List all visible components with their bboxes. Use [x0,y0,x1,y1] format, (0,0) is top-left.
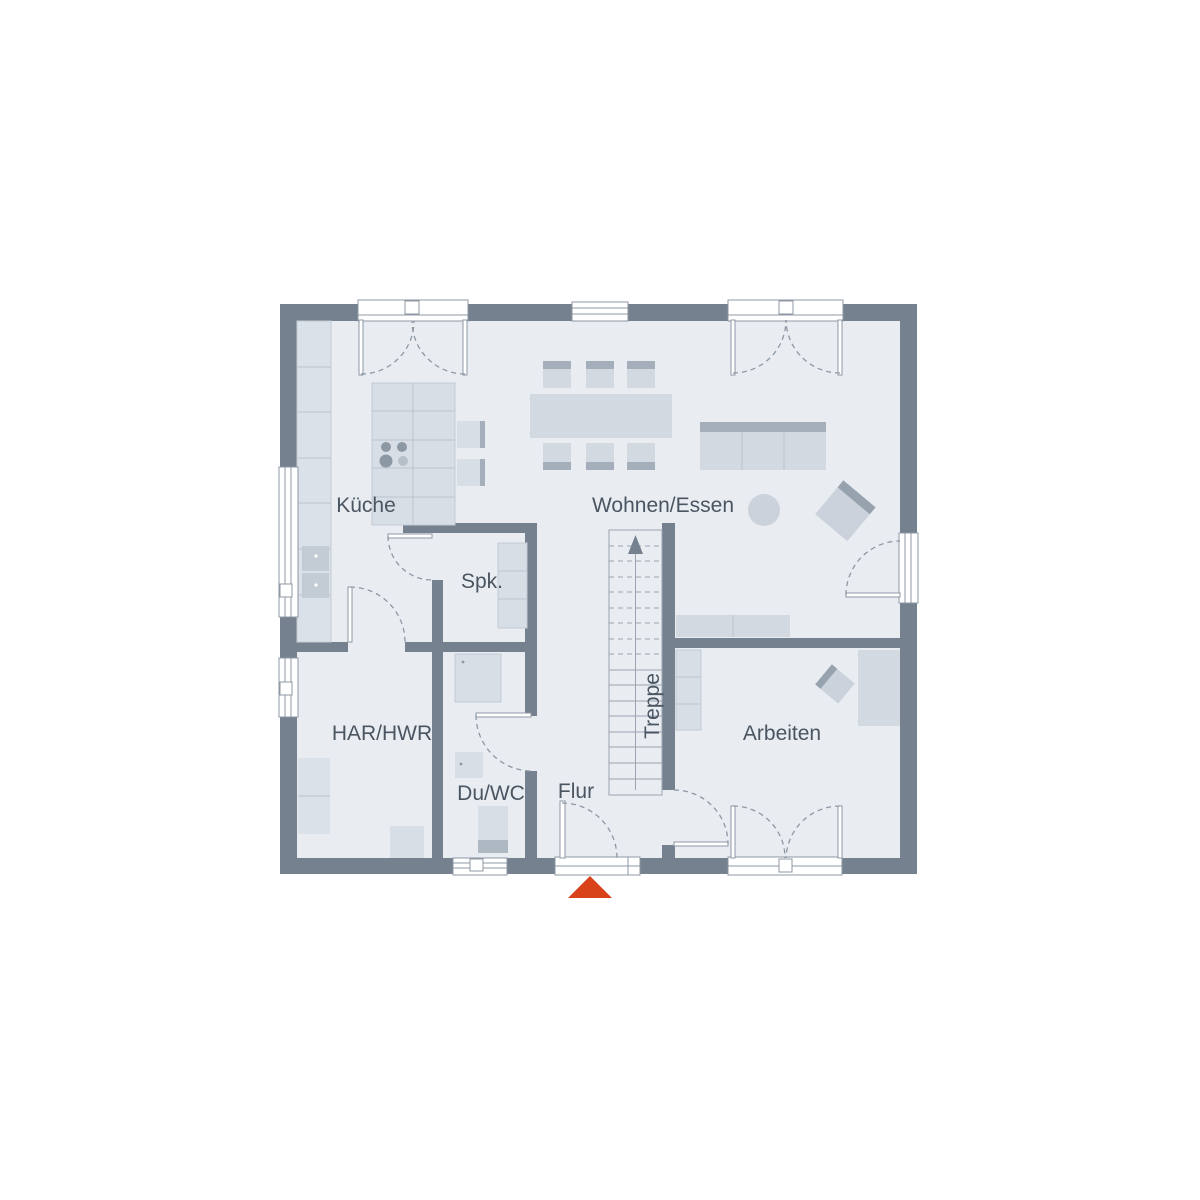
room-label-treppe: Treppe [641,673,664,739]
washbasin [455,752,483,778]
burner-4 [398,456,408,466]
door-leaf [731,320,735,375]
dining-chair [627,369,655,388]
room-label-kueche: Küche [336,494,396,517]
door-leaf [560,801,565,858]
floor-plan-page: Küche Wohnen/Essen Spk. HAR/HWR Du/WC Fl… [0,0,1200,1200]
door-leaf [846,593,900,597]
side-table [748,494,780,526]
shower-drain [462,661,465,664]
room-label-wohnen-essen: Wohnen/Essen [592,494,734,517]
window-top-center [572,302,628,321]
burner-3 [380,455,393,468]
wall-har-north-left [280,642,348,652]
window-handle-icon [280,584,292,597]
burner-2 [397,442,407,452]
dining-set [530,361,672,470]
door-handle-icon [405,301,419,314]
kitchen-sink-upper [302,546,329,571]
toilet [478,806,508,840]
bookshelf [676,650,701,730]
chair-back [543,462,571,470]
dining-chair [543,443,571,462]
door-leaf [476,713,531,717]
wall-flur-west-lower [525,771,537,858]
toilet-tank [478,840,508,853]
window-handle-icon [280,682,292,695]
dining-chair [586,443,614,462]
door-frame [899,533,918,603]
wall-stair-east [662,523,675,790]
staircase [609,530,662,795]
dining-chair [543,369,571,388]
door-leaf [348,587,352,642]
kitchen-counter [297,321,331,642]
door-leaf [731,806,735,858]
dining-chair [586,369,614,388]
sofa-back [700,422,826,432]
door-leaf [674,842,728,846]
door-handle-icon [779,859,792,872]
window-frame [572,302,628,321]
sink-dot-2 [314,583,317,586]
door-handle-icon [779,301,793,314]
window-handle-icon [470,859,483,871]
stool-1-back [480,421,485,448]
basin-dot [460,763,463,766]
wall-stair-east-stub [662,845,675,858]
chair-back [627,361,655,369]
chair-back [543,361,571,369]
room-label-har-hwr: HAR/HWR [332,722,432,745]
floor-plan: Küche Wohnen/Essen Spk. HAR/HWR Du/WC Fl… [0,0,1200,1200]
har-appliance-2 [390,826,424,858]
desk [858,650,900,726]
door-leaf [838,806,842,858]
dining-table [530,394,672,438]
sink-dot-1 [314,554,317,557]
room-label-arbeiten: Arbeiten [743,722,821,745]
door-leaf [463,320,467,375]
door-leaf [359,320,363,375]
burner-1 [381,442,391,452]
chair-back [586,462,614,470]
door-leaf [388,534,432,538]
chair-back [586,361,614,369]
room-label-spk: Spk. [461,570,503,593]
room-label-du-wc: Du/WC [457,782,525,805]
window-duwc-south [453,858,507,875]
window-har-west [279,658,298,717]
wall-duwc-west [432,580,443,858]
stool-2-back [480,459,485,486]
wall-har-north-right [405,642,537,652]
door-leaf [838,320,842,375]
wall-arbeiten-north [662,638,900,648]
dining-chair [627,443,655,462]
room-label-flur: Flur [558,780,594,803]
window-kueche-west [279,467,298,617]
sofa [700,432,826,470]
chair-back [627,462,655,470]
